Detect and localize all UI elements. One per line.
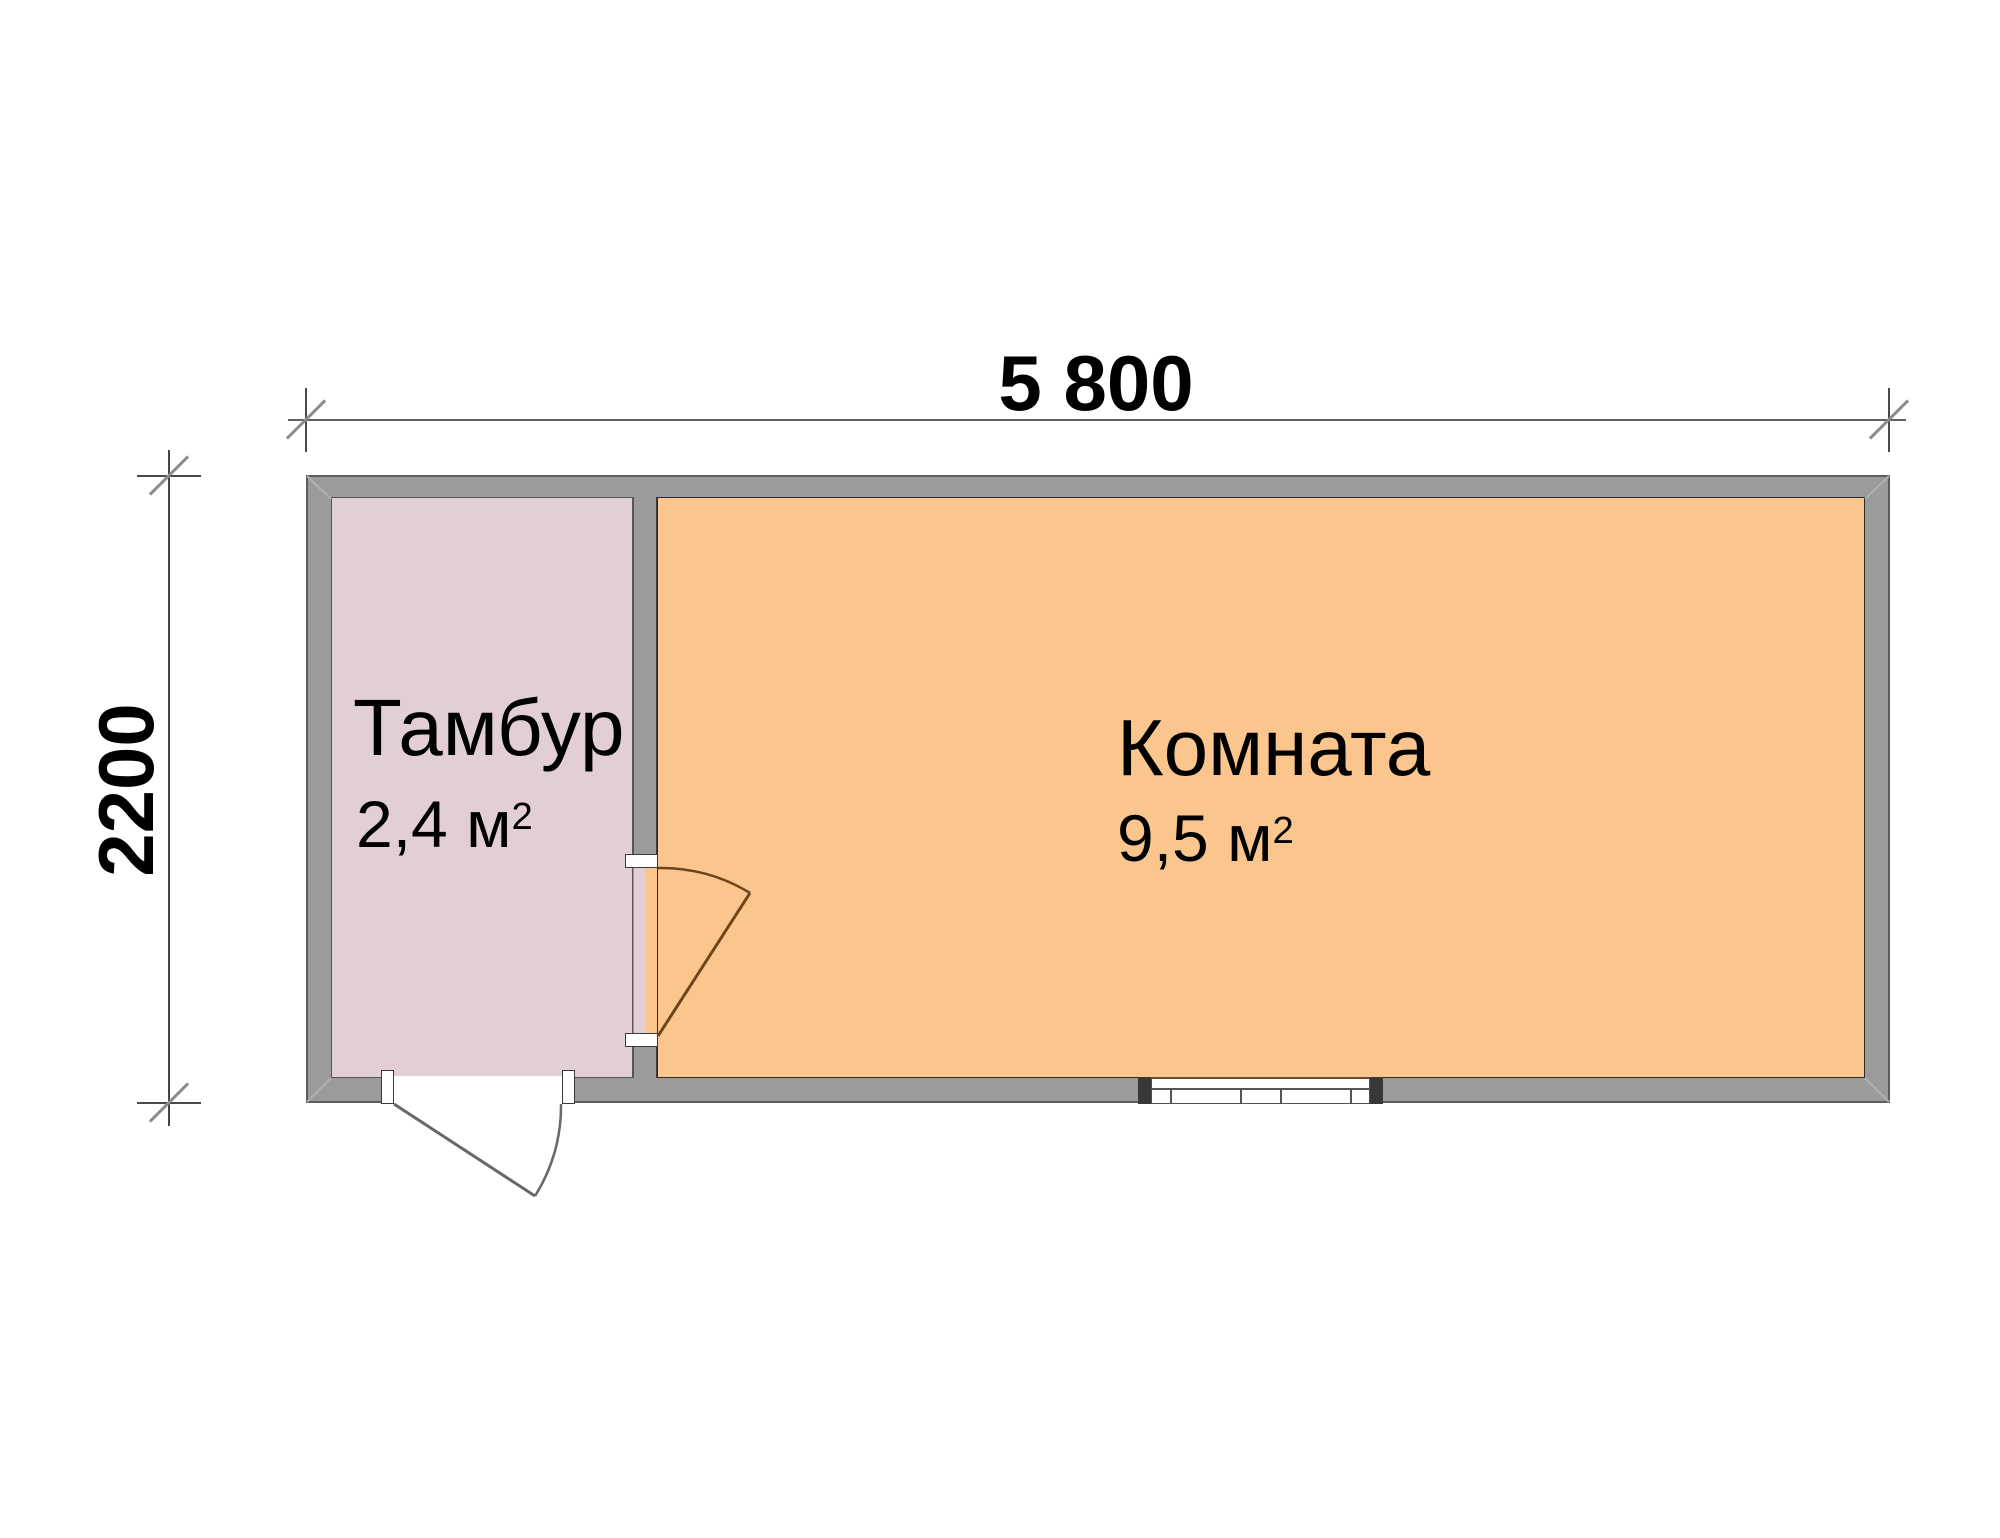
window-frame <box>1151 1077 1370 1104</box>
window-jamb-right <box>1370 1077 1383 1104</box>
exterior-door-jamb-right <box>562 1070 575 1104</box>
window-divider <box>1240 1090 1242 1103</box>
room-komnata-area-sup: 2 <box>1272 809 1293 852</box>
room-tambur-label: Тамбур <box>353 688 625 768</box>
width-dimension-label: 5 800 <box>946 344 1246 422</box>
floor-plan: 5 800 2200 <box>0 0 2000 1538</box>
partition-wall-upper <box>633 497 657 856</box>
height-dimension-label: 2200 <box>86 690 166 890</box>
room-tambur-area-sup: 2 <box>511 795 532 838</box>
window-jamb-left <box>1138 1077 1151 1104</box>
window-divider <box>1350 1090 1352 1103</box>
room-tambur-area-value: 2,4 м <box>356 787 511 861</box>
interior-door-jamb-bottom <box>625 1033 658 1047</box>
partition-wall-lower <box>633 1046 657 1078</box>
exterior-door-opening <box>394 1076 562 1104</box>
window-glazing-line <box>1151 1088 1370 1090</box>
exterior-door-jamb-left <box>381 1070 394 1104</box>
interior-door-jamb-top <box>625 854 658 868</box>
door-threshold <box>634 868 657 1035</box>
room-komnata-area: 9,5 м2 <box>1117 805 1294 871</box>
room-komnata-label: Комната <box>1117 708 1430 788</box>
room-tambur-area: 2,4 м2 <box>356 791 533 857</box>
window-divider <box>1280 1090 1282 1103</box>
room-komnata-area-value: 9,5 м <box>1117 801 1272 875</box>
window-divider <box>1170 1090 1172 1103</box>
exterior-door-swing <box>394 1104 561 1196</box>
